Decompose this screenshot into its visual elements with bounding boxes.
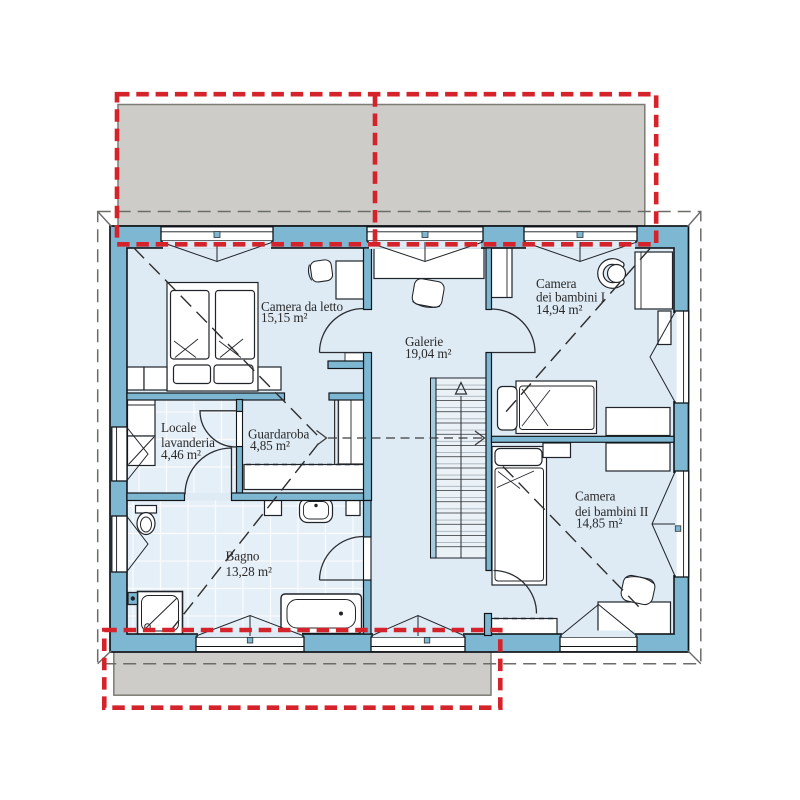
- svg-text:Bagno: Bagno: [226, 549, 260, 564]
- svg-text:4,85 m²: 4,85 m²: [250, 438, 290, 453]
- svg-text:15,15 m²: 15,15 m²: [261, 310, 308, 325]
- svg-text:13,28 m²: 13,28 m²: [226, 564, 273, 579]
- svg-text:Locale: Locale: [161, 420, 197, 435]
- svg-text:4,46 m²: 4,46 m²: [161, 447, 201, 462]
- svg-text:14,94 m²: 14,94 m²: [536, 302, 583, 317]
- svg-text:Camera: Camera: [575, 489, 616, 504]
- svg-text:14,85 m²: 14,85 m²: [576, 516, 623, 531]
- svg-text:19,04 m²: 19,04 m²: [405, 346, 452, 361]
